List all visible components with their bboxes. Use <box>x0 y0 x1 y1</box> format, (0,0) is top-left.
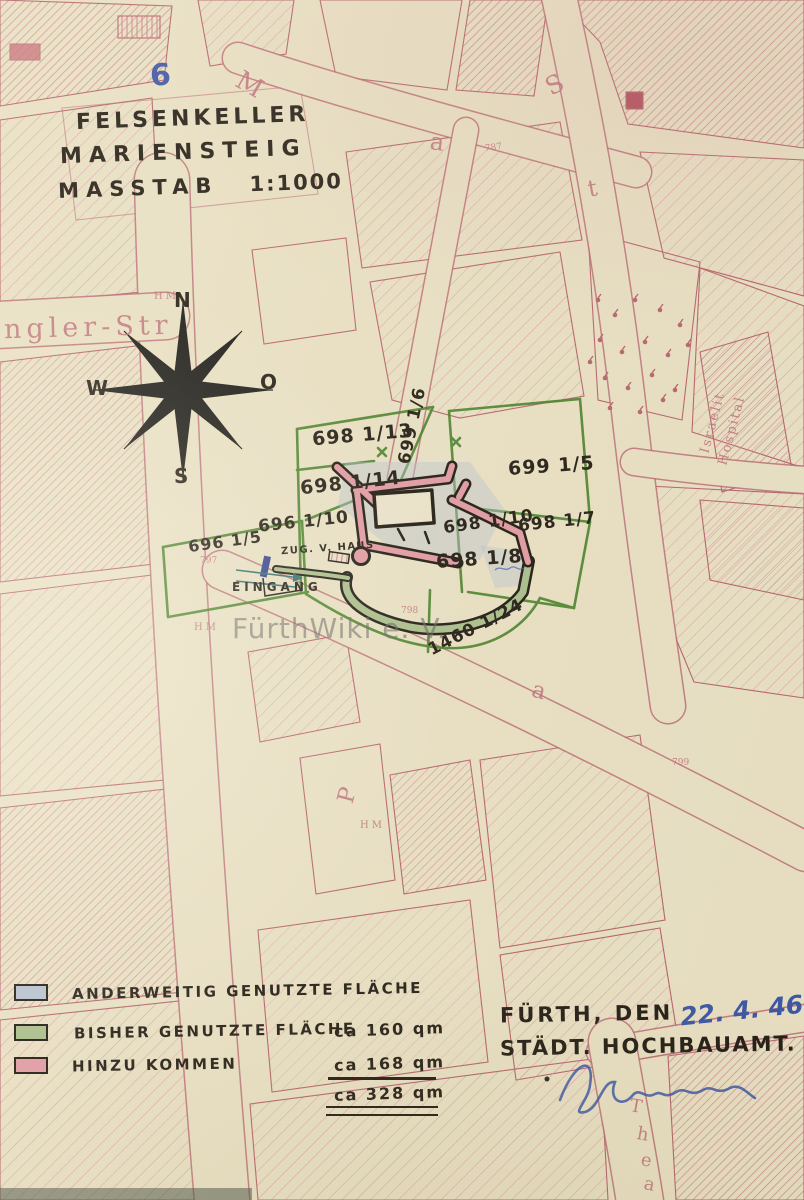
legend-total-underline <box>326 1106 438 1116</box>
compass-west-label: W <box>86 376 108 400</box>
legend-value-added: ca 168 qm <box>334 1052 446 1075</box>
survey-mark-hm3: HM <box>360 820 385 831</box>
watermark: FürthWiki e. V. <box>232 612 447 645</box>
page-number: 6 <box>149 57 174 93</box>
point-number-797: 797 <box>200 556 217 566</box>
compass-south-label: S <box>174 464 188 488</box>
legend-swatch-added <box>14 1057 48 1074</box>
scan-edge-band <box>0 1188 252 1200</box>
survey-mark-hm1: HM <box>154 291 179 302</box>
survey-mark-hm2: HM <box>194 622 219 633</box>
point-number-799: 799 <box>672 758 689 768</box>
compass-east-label: O <box>260 370 277 394</box>
scanned-map-page: 6 FELSENKELLER MARIENSTEIG MASSTAB 1:100… <box>0 0 804 1200</box>
legend-swatch-previously-used <box>14 1024 48 1041</box>
legend-total-value: ca 328 qm <box>334 1082 446 1105</box>
legend-sum-line <box>328 1077 436 1080</box>
legend-value-previously-used: ca 160 qm <box>334 1018 446 1041</box>
legend-swatch-otherwise-used <box>14 984 48 1001</box>
scale-value: 1:1000 <box>249 169 343 196</box>
point-number-798: 798 <box>401 606 418 616</box>
entrance-annotation: EINGANG <box>232 580 322 594</box>
legend-label-added: HINZU KOMMEN <box>72 1055 238 1076</box>
footer-place: FÜRTH, DEN <box>500 1000 674 1027</box>
street-name-ngler-str: ngler-Str <box>4 310 173 345</box>
